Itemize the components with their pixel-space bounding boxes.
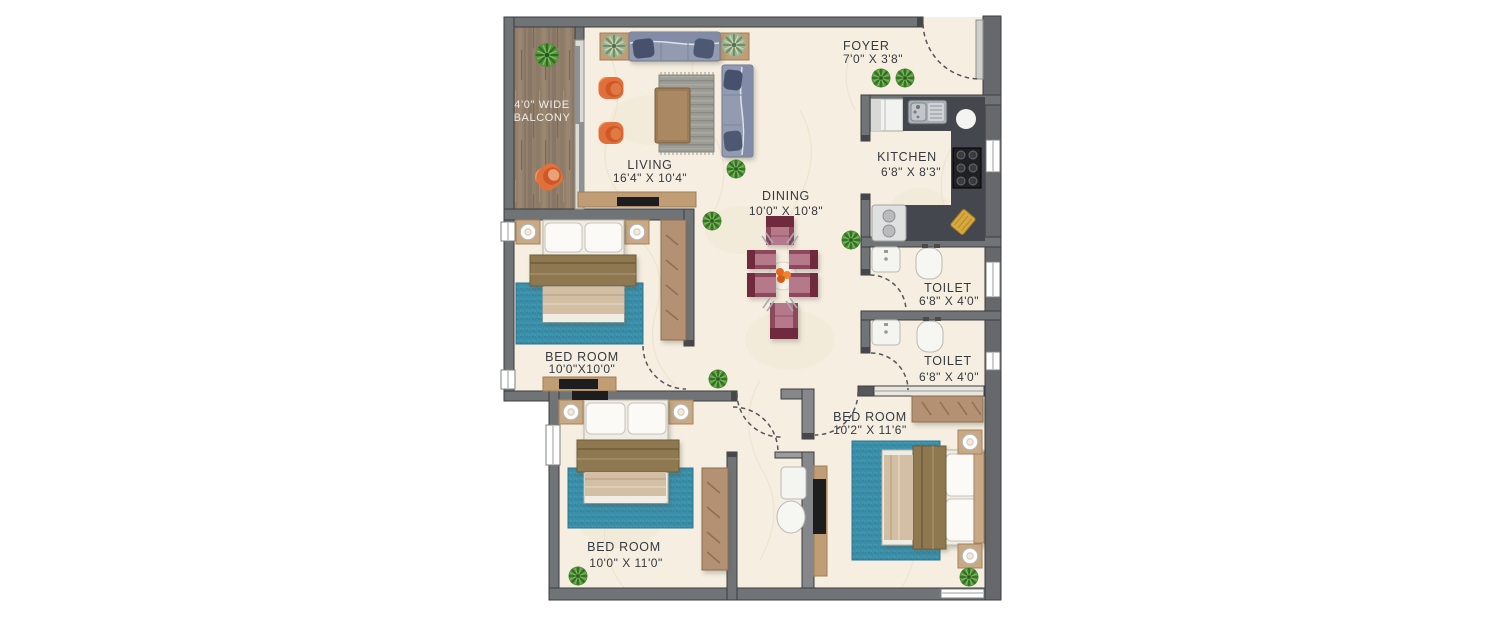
- svg-text:FOYER: FOYER: [843, 39, 890, 53]
- svg-text:BED ROOM: BED ROOM: [587, 540, 661, 554]
- svg-text:10'2" X 11'6": 10'2" X 11'6": [833, 423, 906, 437]
- svg-text:7'0" X 3'8": 7'0" X 3'8": [843, 52, 903, 66]
- svg-text:6'8" X 8'3": 6'8" X 8'3": [881, 165, 941, 179]
- svg-text:6'8" X 4'0": 6'8" X 4'0": [919, 370, 979, 384]
- svg-text:10'0" X 11'0": 10'0" X 11'0": [589, 556, 662, 570]
- svg-text:TOILET: TOILET: [924, 354, 972, 368]
- svg-text:10'0"X10'0": 10'0"X10'0": [549, 362, 616, 376]
- svg-text:TOILET: TOILET: [924, 281, 972, 295]
- svg-text:DINING: DINING: [762, 189, 810, 203]
- svg-text:10'0" X 10'8": 10'0" X 10'8": [749, 204, 823, 218]
- svg-text:LIVING: LIVING: [627, 158, 672, 172]
- svg-text:16'4" X 10'4": 16'4" X 10'4": [613, 171, 687, 185]
- svg-text:BALCONY: BALCONY: [514, 112, 571, 124]
- svg-text:KITCHEN: KITCHEN: [877, 150, 937, 164]
- svg-text:6'8" X 4'0": 6'8" X 4'0": [919, 294, 979, 308]
- svg-text:4'0" WIDE: 4'0" WIDE: [514, 99, 569, 111]
- svg-text:BED ROOM: BED ROOM: [833, 410, 907, 424]
